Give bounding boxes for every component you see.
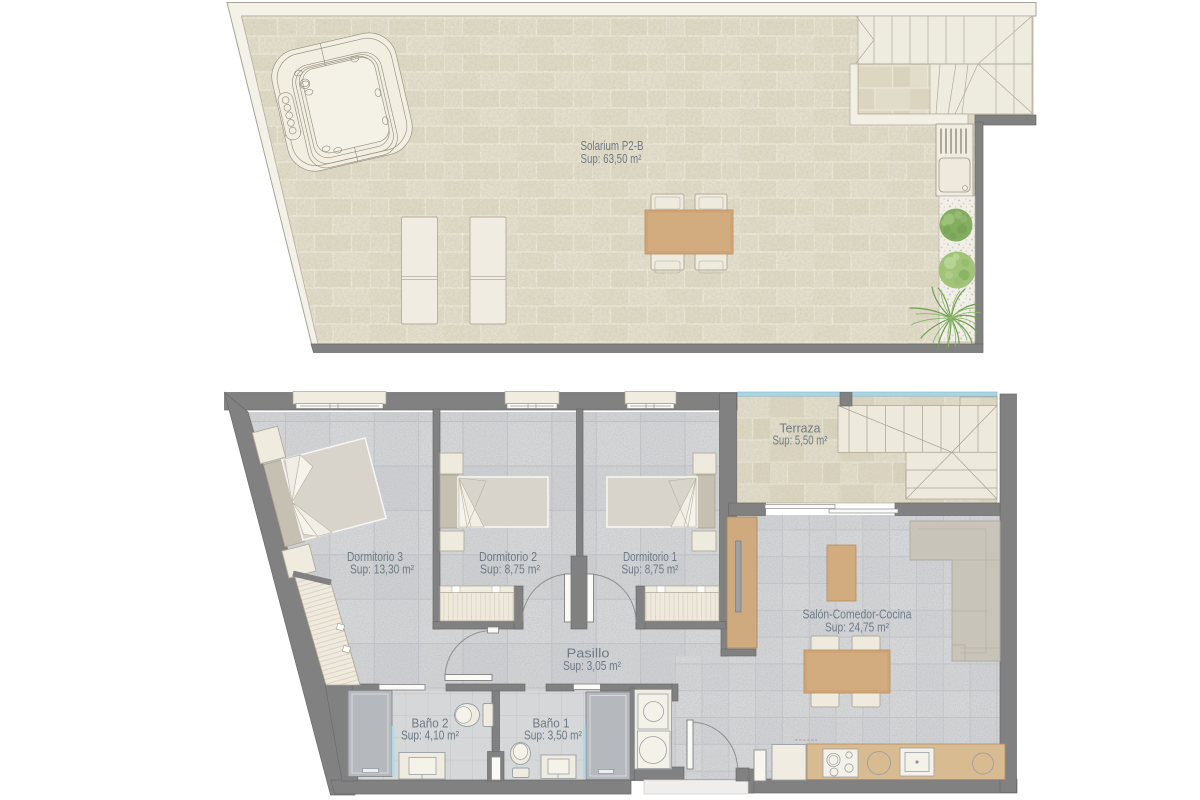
- svg-text:Sup: 24,75 m²: Sup: 24,75 m²: [825, 621, 889, 635]
- svg-text:Sup: 3,05 m²: Sup: 3,05 m²: [563, 659, 621, 673]
- svg-text:Salón-Comedor-Cocina: Salón-Comedor-Cocina: [803, 607, 913, 622]
- svg-text:Sup: 63,50 m²: Sup: 63,50 m²: [581, 152, 642, 166]
- svg-text:Sup: 8,75 m²: Sup: 8,75 m²: [480, 563, 540, 577]
- svg-text:Sup: 8,75 m²: Sup: 8,75 m²: [622, 563, 679, 577]
- svg-text:Solarium P2-B: Solarium P2-B: [581, 138, 644, 153]
- svg-text:Sup: 5,50 m²: Sup: 5,50 m²: [773, 434, 828, 448]
- svg-text:Sup: 3,50 m²: Sup: 3,50 m²: [524, 729, 582, 743]
- svg-text:Sup: 13,30 m²: Sup: 13,30 m²: [350, 563, 414, 577]
- svg-text:Sup: 4,10 m²: Sup: 4,10 m²: [401, 729, 459, 743]
